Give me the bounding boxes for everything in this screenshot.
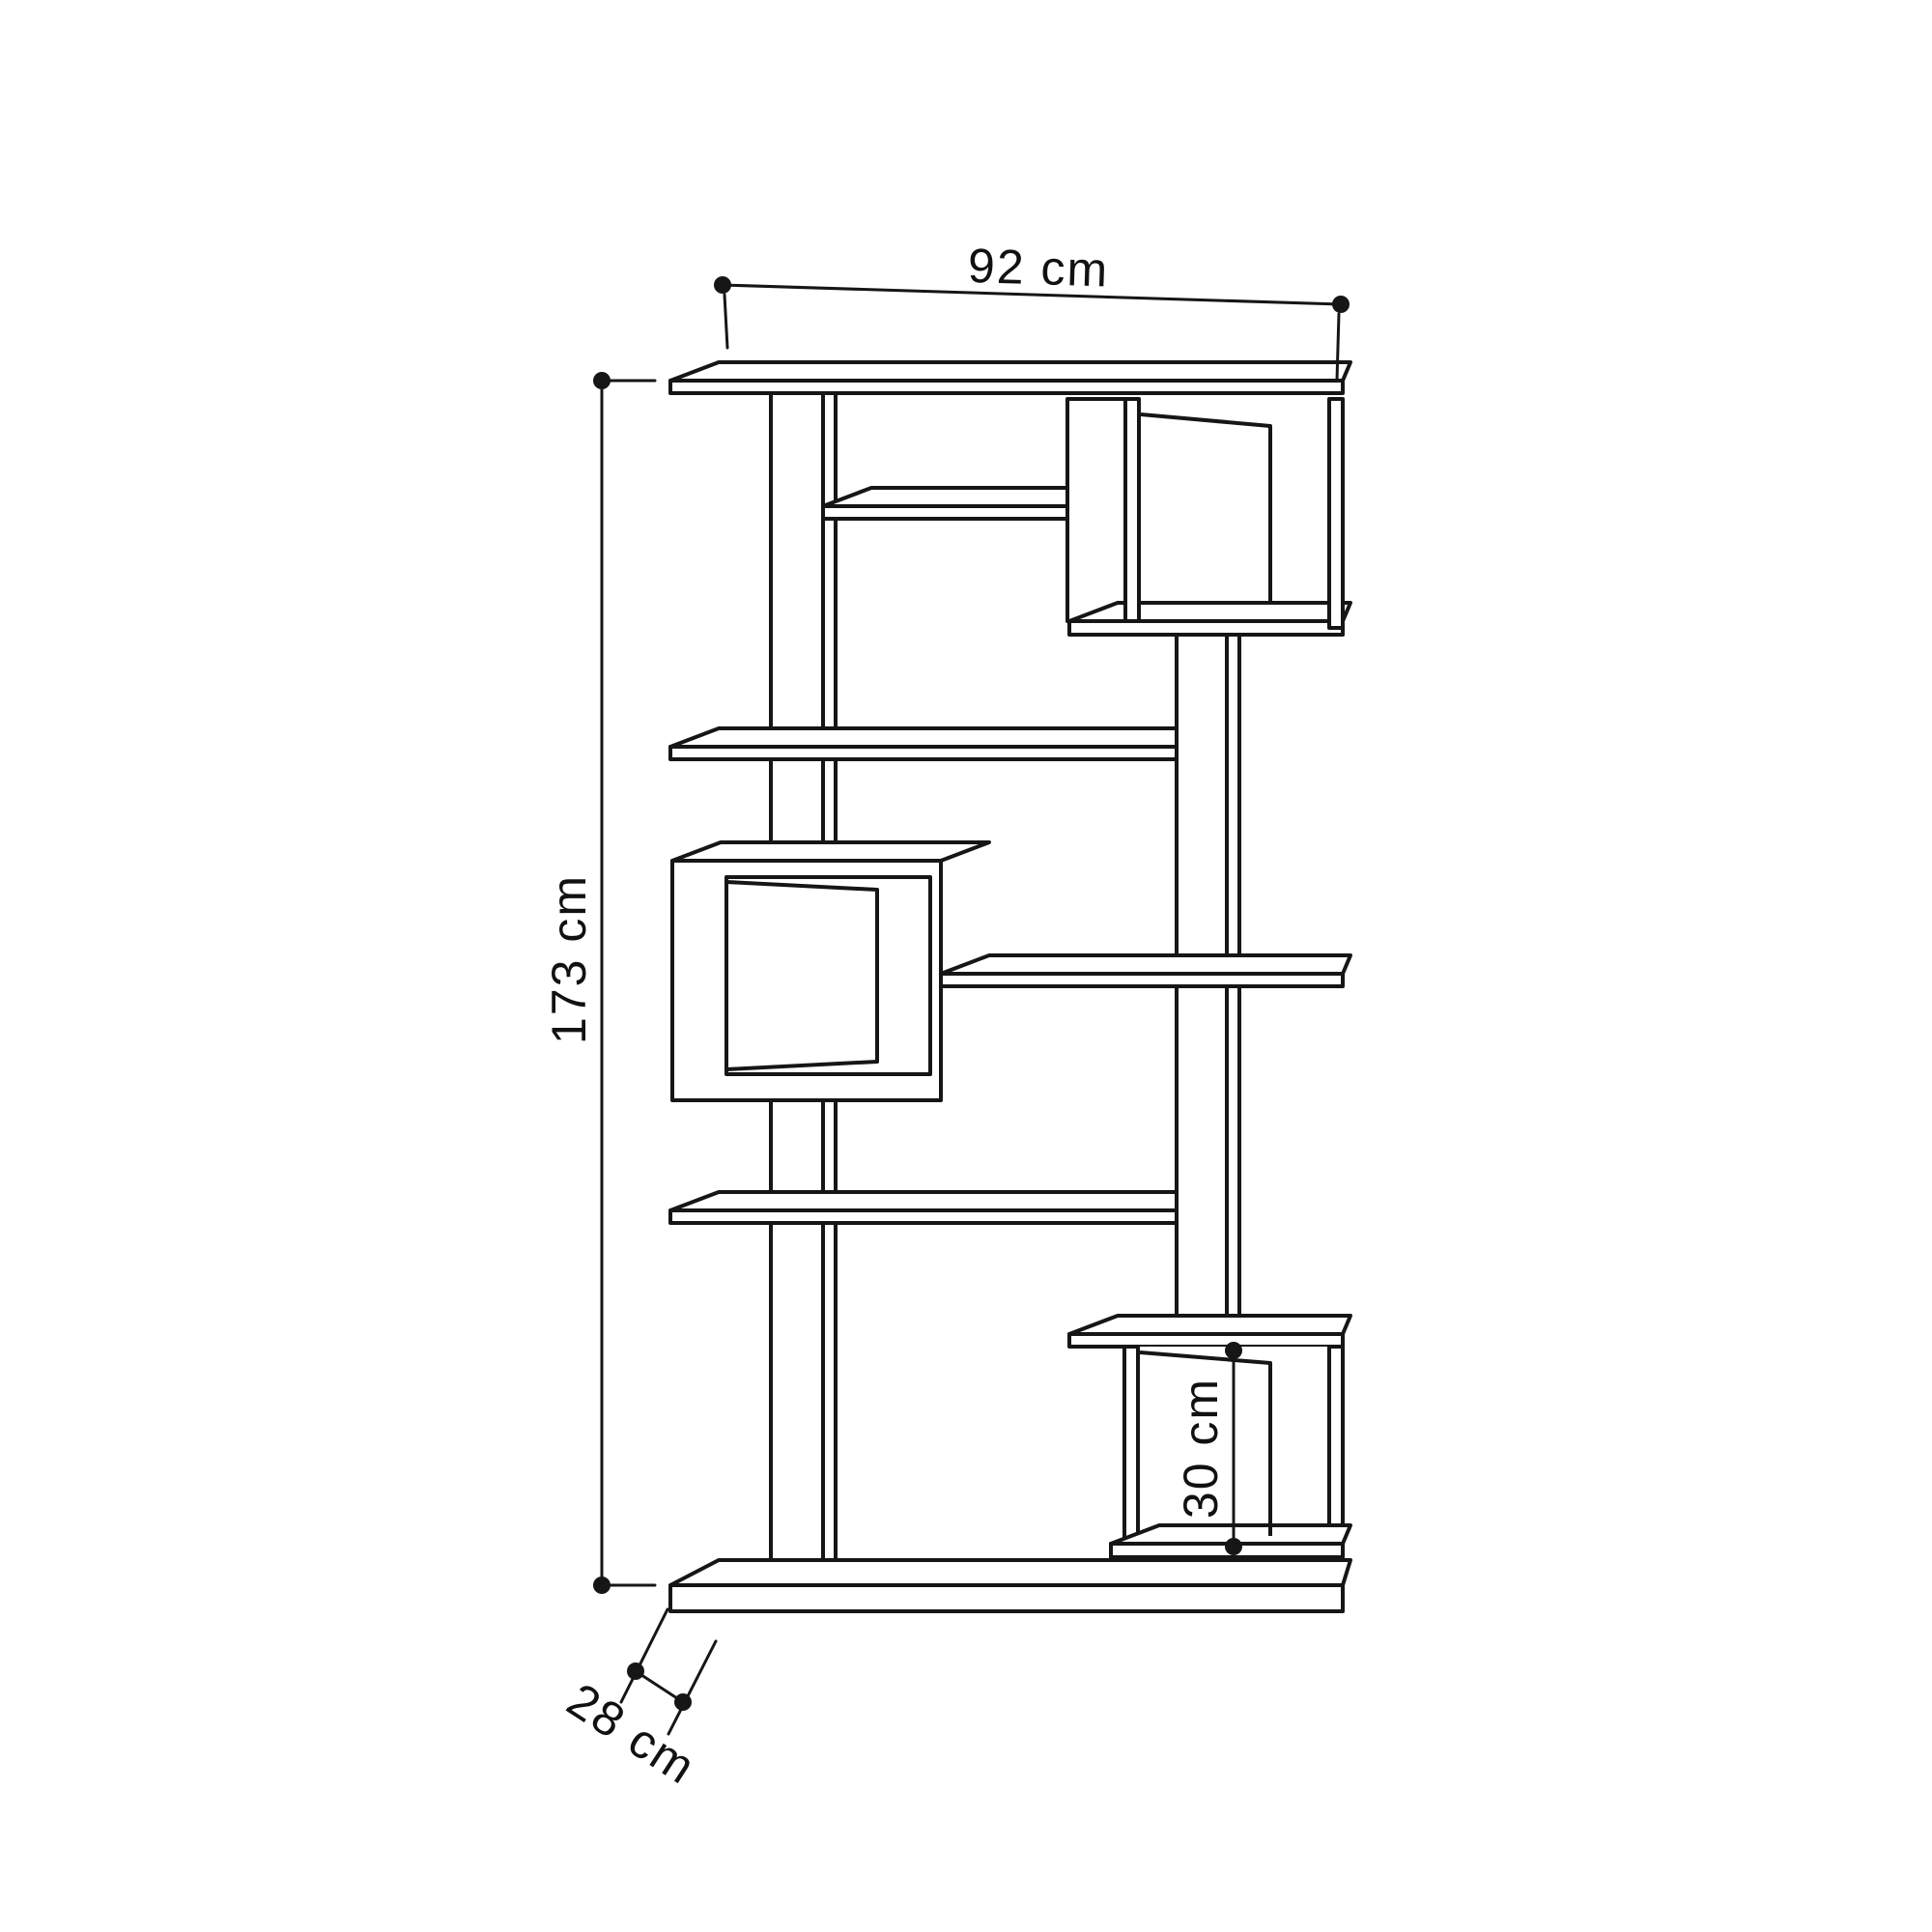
shelf-row-5: [670, 1192, 1225, 1223]
shelf-row-3-front-face: [941, 974, 1343, 986]
width-dimension: 92 cm: [714, 239, 1350, 381]
niche-bottom-right-top-front-face: [1069, 1334, 1343, 1347]
width-endpoint-dot-right: [1332, 296, 1350, 313]
top-board-front-face: [670, 381, 1343, 393]
niche-endpoint-dot-top: [1225, 1342, 1242, 1359]
height-dimension-label: 173 cm: [542, 874, 596, 1044]
niche-bottom-right-left-wall: [1124, 1347, 1138, 1544]
shelf-row-2: [670, 728, 1225, 759]
upper-left-shelf-front-face: [823, 506, 1070, 519]
bookshelf-dimension-drawing: 92 cm 173 cm 28 cm 30 cm: [0, 0, 1932, 1932]
shelf-row-2-front-face: [670, 747, 1177, 759]
height-endpoint-dot-bottom: [593, 1577, 611, 1594]
upper-divider-front-face: [1067, 399, 1125, 621]
niche-top-right-bottom-top-face: [1069, 603, 1350, 621]
width-extension-right: [1337, 314, 1339, 381]
shelf-row-5-top-face: [670, 1192, 1225, 1210]
niche-top-right-right-wall: [1329, 399, 1343, 628]
niche-top-right-backdrop: [1125, 399, 1343, 635]
niche-middle-left-top-face: [672, 842, 989, 861]
height-endpoint-dot-top: [593, 372, 611, 389]
depth-extension-front: [668, 1641, 716, 1734]
niche-bottom-right-top-top-face: [1069, 1316, 1350, 1334]
niche-top-right-left-wall: [1125, 399, 1139, 621]
diagram-canvas: 92 cm 173 cm 28 cm 30 cm: [0, 0, 1932, 1932]
width-extension-left: [724, 295, 727, 348]
width-endpoint-dot-left: [714, 276, 731, 294]
top-board-top-face: [670, 362, 1350, 381]
depth-endpoint-dot-front: [674, 1693, 692, 1711]
shelf-row-3-top-face: [941, 955, 1350, 974]
niche-middle-left: [672, 842, 989, 1100]
shelf-row-3: [941, 955, 1350, 986]
niche-bottom-right-right-wall: [1329, 1347, 1343, 1550]
base-board: [670, 1560, 1350, 1611]
base-board-front-face: [670, 1585, 1343, 1611]
upper-divider-panel: [1067, 399, 1125, 621]
niche-endpoint-dot-bottom: [1225, 1538, 1242, 1555]
width-dimension-label: 92 cm: [967, 239, 1110, 298]
depth-dimension-label: 28 cm: [558, 1673, 706, 1796]
shelf-row-2-top-face: [670, 728, 1225, 747]
top-board: [670, 362, 1350, 393]
niche-dimension-label: 30 cm: [1174, 1378, 1228, 1519]
depth-endpoint-dot-back: [627, 1662, 644, 1680]
niche-top-right-bottom-front-face: [1069, 621, 1343, 635]
base-board-top-face: [670, 1560, 1350, 1585]
depth-dimension: 28 cm: [558, 1609, 716, 1795]
shelf-row-5-front-face: [670, 1210, 1177, 1223]
height-dimension: 173 cm: [542, 372, 655, 1594]
